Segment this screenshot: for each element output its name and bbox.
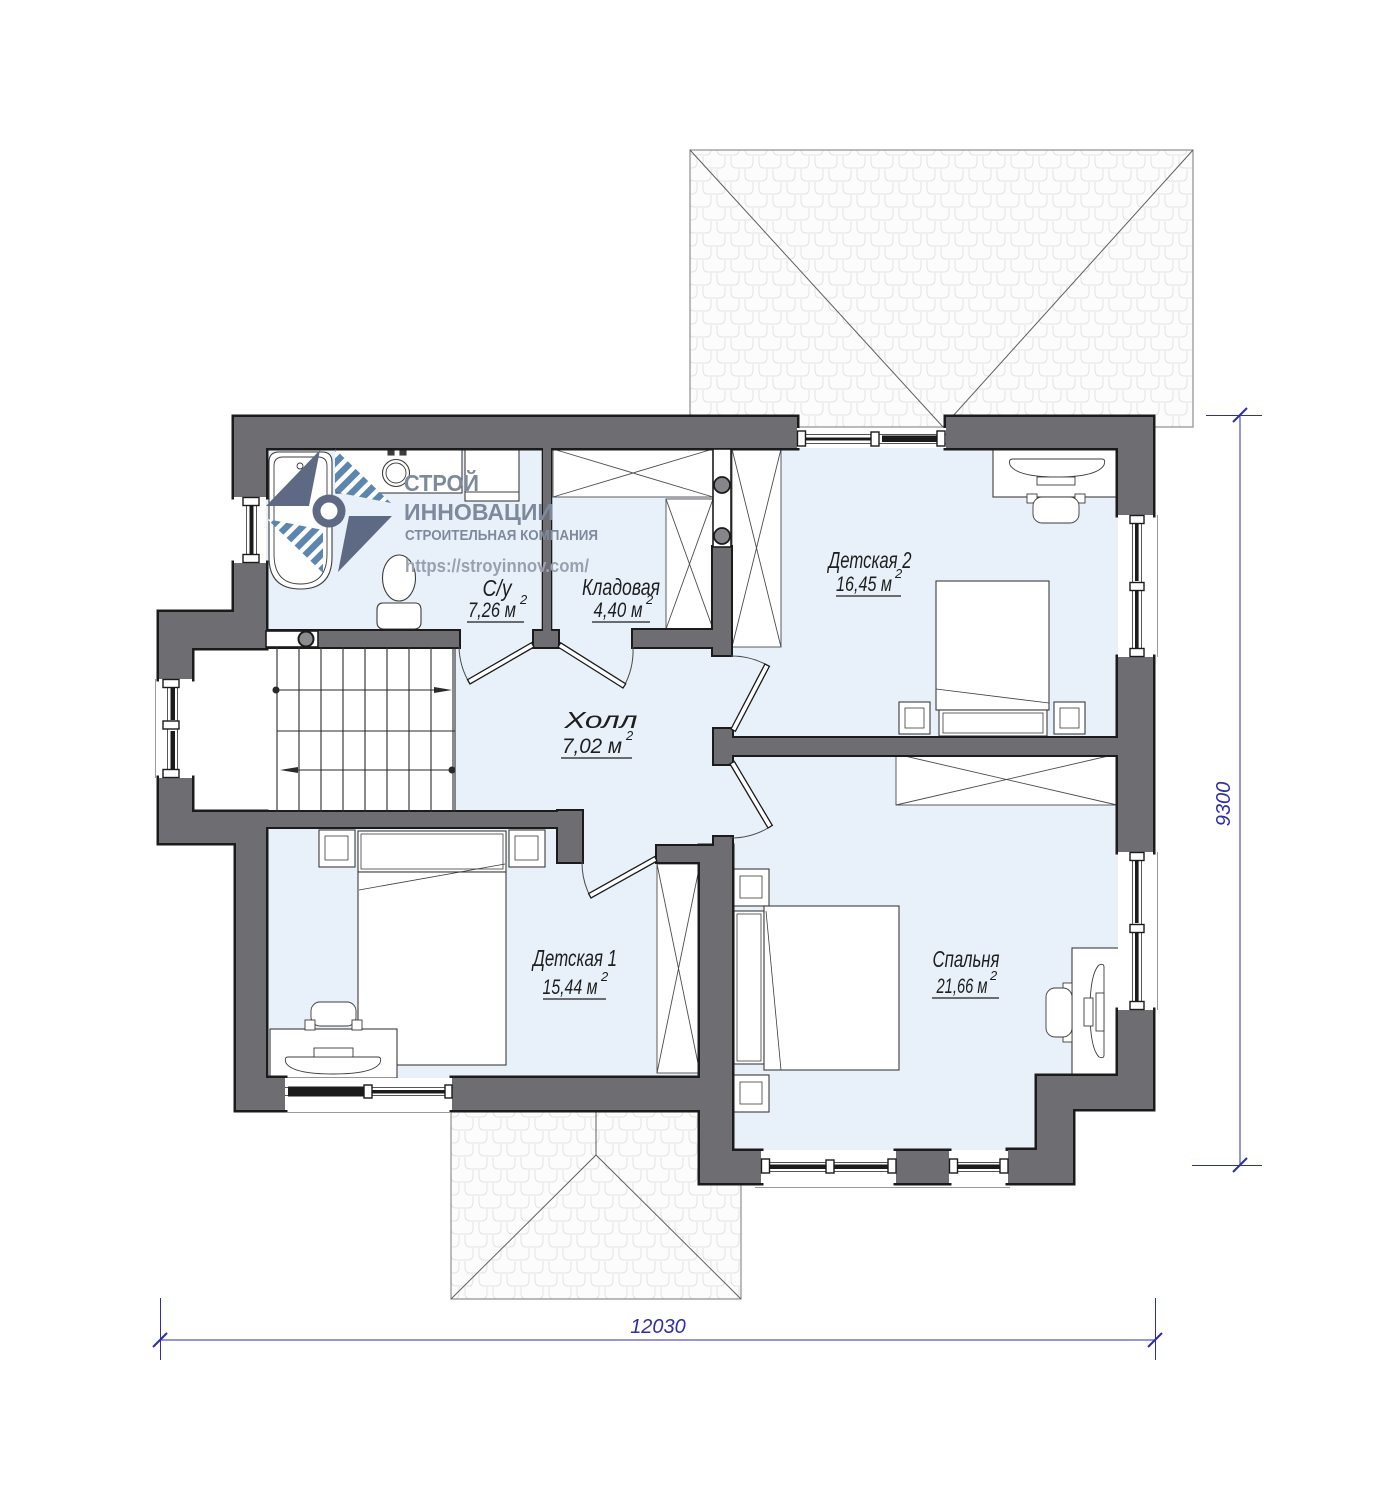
svg-text:15,44 м: 15,44 м	[543, 976, 598, 999]
svg-text:16,45 м: 16,45 м	[836, 573, 892, 596]
svg-text:2: 2	[625, 728, 634, 743]
svg-text:7,26 м: 7,26 м	[468, 599, 516, 622]
svg-text:2: 2	[600, 969, 609, 984]
svg-text:СТРОЙ: СТРОЙ	[404, 469, 479, 496]
svg-text:7,02 м: 7,02 м	[562, 735, 622, 758]
svg-text:9300: 9300	[1213, 782, 1235, 827]
svg-text:ИННОВАЦИИ: ИННОВАЦИИ	[404, 499, 554, 525]
svg-text:СТРОИТЕЛЬНАЯ КОМПАНИЯ: СТРОИТЕЛЬНАЯ КОМПАНИЯ	[405, 528, 598, 544]
svg-text:2: 2	[894, 566, 903, 581]
svg-text:4,40 м: 4,40 м	[594, 599, 643, 622]
svg-text:2: 2	[519, 592, 528, 607]
svg-text:21,66 м: 21,66 м	[936, 975, 988, 998]
svg-text:12030: 12030	[630, 1316, 686, 1338]
svg-text:С/у: С/у	[483, 575, 513, 601]
svg-text:Детская 1: Детская 1	[531, 945, 617, 971]
svg-text:2: 2	[989, 968, 998, 983]
svg-text:https://stroyinnov.com/: https://stroyinnov.com/	[405, 556, 589, 576]
svg-text:2: 2	[645, 592, 654, 607]
